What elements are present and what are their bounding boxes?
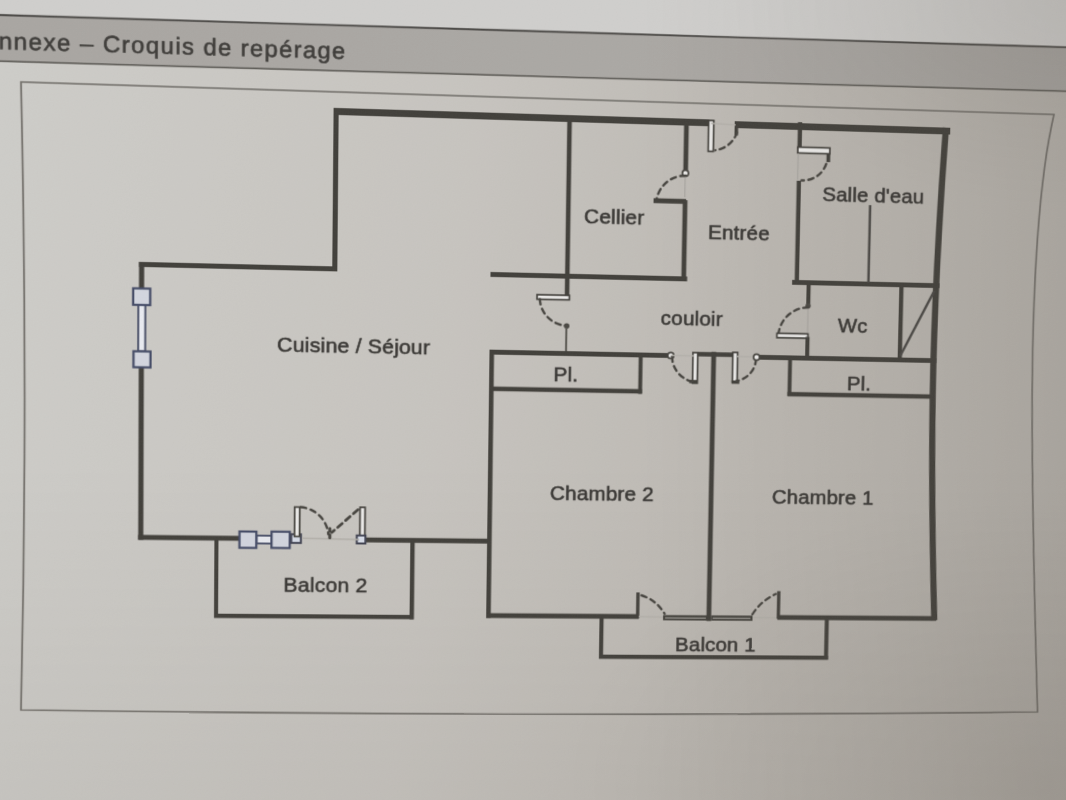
svg-text:Balcon 1: Balcon 1 [675, 633, 756, 656]
svg-text:couloir: couloir [661, 306, 723, 331]
svg-text:Pl.: Pl. [553, 363, 578, 387]
svg-text:Entrée: Entrée [708, 220, 770, 245]
svg-text:Chambre 2: Chambre 2 [550, 481, 654, 506]
svg-text:Pl.: Pl. [847, 372, 872, 396]
svg-text:Chambre 1: Chambre 1 [772, 485, 874, 509]
svg-text:Wc: Wc [838, 314, 868, 338]
svg-text:Cuisine / Séjour: Cuisine / Séjour [277, 332, 430, 359]
svg-text:Salle d'eau: Salle d'eau [822, 182, 924, 208]
svg-text:Cellier: Cellier [584, 205, 645, 230]
svg-text:Balcon 2: Balcon 2 [283, 573, 367, 597]
